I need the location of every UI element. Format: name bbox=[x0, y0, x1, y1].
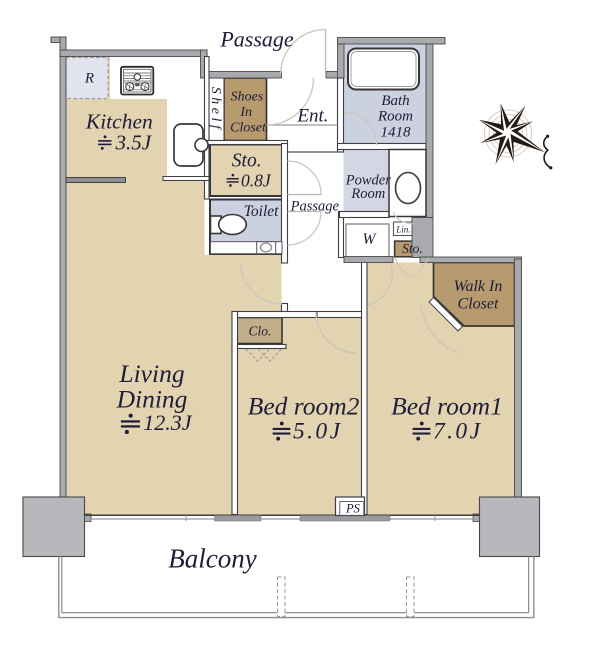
svg-text:7.0J: 7.0J bbox=[433, 419, 482, 445]
svg-text:Sto.: Sto. bbox=[402, 241, 423, 256]
svg-text:Room: Room bbox=[350, 186, 385, 202]
svg-text:Closet: Closet bbox=[230, 120, 267, 135]
svg-text:Shoes: Shoes bbox=[231, 89, 264, 104]
svg-text:Bed room2: Bed room2 bbox=[248, 392, 360, 421]
svg-text:In: In bbox=[239, 105, 252, 120]
svg-text:Toilet: Toilet bbox=[244, 203, 279, 220]
svg-text:0.8J: 0.8J bbox=[241, 171, 272, 191]
svg-text:1418: 1418 bbox=[381, 125, 412, 141]
svg-text:Closet: Closet bbox=[458, 296, 499, 313]
svg-text:Bath: Bath bbox=[381, 93, 409, 109]
svg-text:Passage: Passage bbox=[219, 27, 294, 52]
svg-text:Room: Room bbox=[377, 109, 413, 125]
svg-text:12.3J: 12.3J bbox=[143, 410, 193, 435]
svg-text:Balcony: Balcony bbox=[168, 544, 256, 574]
svg-text:Walk In: Walk In bbox=[454, 278, 503, 295]
svg-text:Ent.: Ent. bbox=[296, 106, 328, 127]
svg-text:Clo.: Clo. bbox=[249, 324, 272, 339]
svg-text:PS: PS bbox=[345, 501, 361, 515]
svg-text:3.5J: 3.5J bbox=[115, 131, 153, 155]
svg-text:Sto.: Sto. bbox=[232, 151, 262, 172]
svg-text:Passage: Passage bbox=[290, 199, 340, 215]
svg-text:Lin.: Lin. bbox=[395, 225, 410, 235]
svg-text:W: W bbox=[363, 231, 378, 248]
svg-text:5.0J: 5.0J bbox=[293, 419, 342, 445]
svg-text:Bed room1: Bed room1 bbox=[391, 392, 503, 421]
svg-text:R: R bbox=[84, 71, 94, 87]
svg-text:Shelf: Shelf bbox=[208, 87, 223, 133]
